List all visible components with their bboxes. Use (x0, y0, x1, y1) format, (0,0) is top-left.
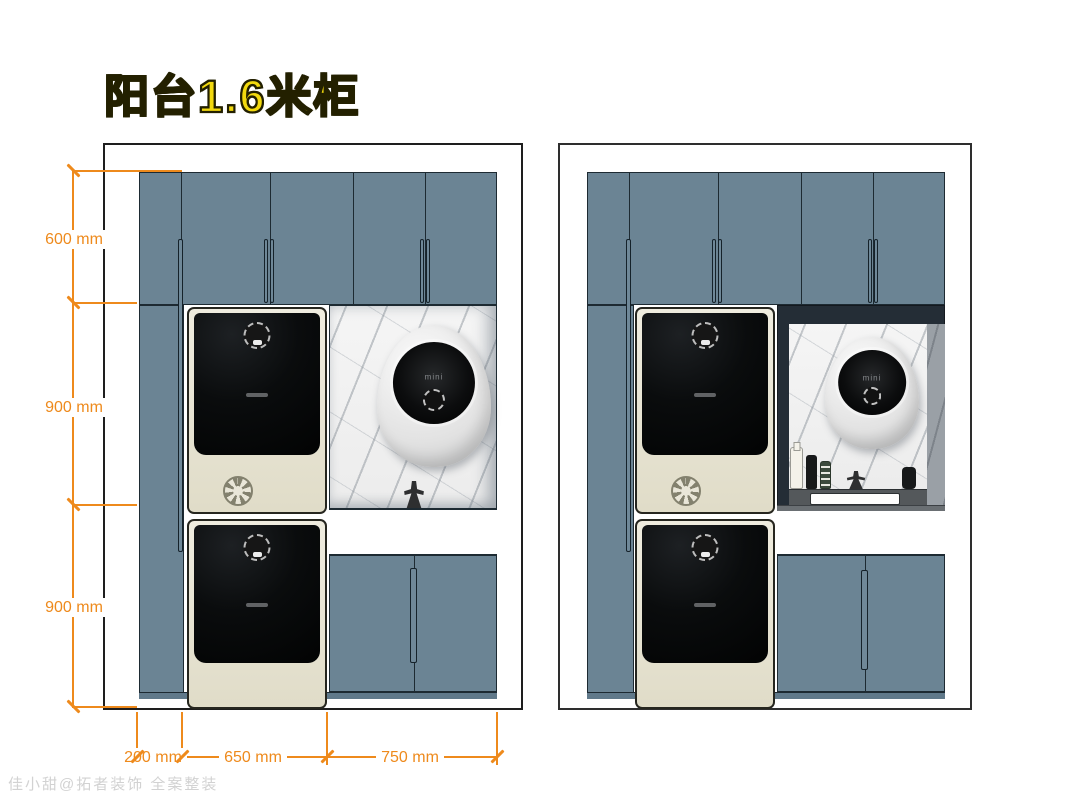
dim-label-upper-height: 600 mm (37, 230, 111, 249)
washer-vent (223, 476, 253, 506)
washer-bottom (635, 519, 775, 709)
washer-brand-mark (694, 393, 716, 397)
niche-side-panel (927, 324, 945, 509)
toiletry-bottle (790, 447, 803, 489)
base-cabinet (777, 555, 945, 692)
cabinet-door-divider (353, 173, 354, 304)
left-elevation-sheet: mini (103, 143, 523, 710)
washer-dial (244, 322, 271, 349)
door-handle (874, 239, 878, 303)
door-handle (426, 239, 430, 303)
washer-door-panel (642, 313, 768, 455)
upper-cabinet (139, 172, 497, 305)
dim-extension-line (72, 302, 137, 304)
dim-label-column-width: 200 mm (119, 748, 187, 767)
toiletry-jar (902, 467, 916, 489)
tall-door-handle (626, 239, 631, 552)
dim-extension-line (72, 504, 137, 506)
dim-extension-line (72, 706, 137, 708)
door-handle (868, 239, 872, 303)
washer-dial (692, 534, 719, 561)
dim-label-washer-width: 650 mm (219, 748, 287, 767)
door-handle (420, 239, 424, 303)
washer-brand-mark (246, 603, 268, 607)
sink-basin (810, 493, 900, 505)
countertop (329, 509, 497, 555)
dryer-door: mini (838, 350, 906, 415)
bottle-neck (793, 442, 800, 451)
washer-brand-mark (694, 603, 716, 607)
washer-door-panel (642, 525, 768, 663)
watermark: 佳小甜@拓者装饰 全案整装 (8, 773, 218, 794)
washer-vent (671, 476, 701, 506)
door-handle (712, 239, 716, 303)
dryer-brand-label: mini (425, 372, 444, 381)
upper-cabinet (587, 172, 945, 305)
dryer-brand-label: mini (863, 373, 882, 382)
washer-door-panel (194, 313, 320, 455)
washer-dial (692, 322, 719, 349)
door-handle (718, 239, 722, 303)
vertical-dim-line (72, 170, 74, 708)
dryer-dial (863, 387, 881, 405)
door-handle (270, 239, 274, 303)
dim-label-middle-height: 900 mm (37, 398, 111, 417)
washer-top (187, 307, 327, 514)
dryer-door: mini (393, 342, 475, 424)
dim-label-sink-width: 750 mm (376, 748, 444, 767)
dim-extension-line (72, 170, 182, 172)
cabinet-door-divider (801, 173, 802, 304)
toiletry-bottle (820, 461, 831, 489)
dim-label-lower-height: 900 mm (37, 598, 111, 617)
washer-brand-mark (246, 393, 268, 397)
page-title: 阳台1.6米柜 (104, 60, 361, 125)
washer-top (635, 307, 775, 514)
countertop (777, 511, 945, 555)
washer-door-panel (194, 525, 320, 663)
base-cabinet-handle (861, 570, 868, 670)
base-cabinet (329, 555, 497, 692)
door-handle (264, 239, 268, 303)
toiletry-bottle (806, 455, 817, 489)
washer-bottom (187, 519, 327, 709)
tall-door-handle (178, 239, 183, 552)
right-render-sheet: mini (558, 143, 972, 710)
washer-dial (244, 534, 271, 561)
balcony-cabinet-drawing: 阳台1.6米柜 mini (0, 0, 1080, 811)
base-cabinet-handle (410, 568, 417, 663)
dryer-dial (423, 389, 445, 411)
